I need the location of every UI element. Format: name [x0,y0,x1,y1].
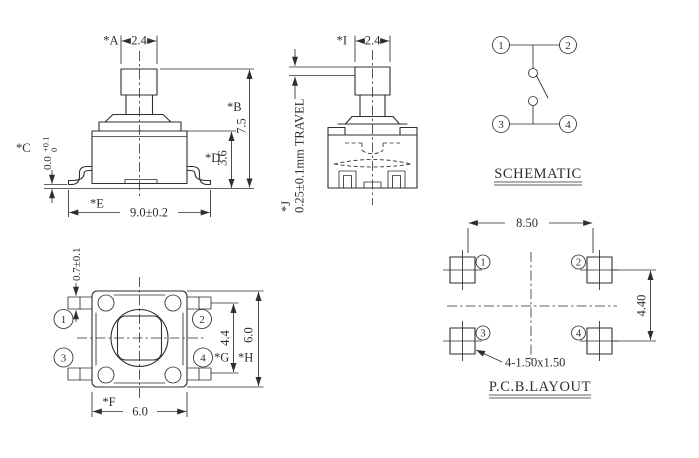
dim-a-value: 2.4 [131,34,147,48]
side-body-outline [328,50,417,205]
front-dim-a: *A 2.4 [103,34,157,65]
schematic-terminal-2: 2 [560,37,577,54]
schematic-title-underline [494,182,582,185]
dim-f-label: *F [102,395,115,409]
top-body-outline [68,277,211,401]
drawing-sheet: *A 2.4 *B 7.5 *D 3.6 *C [0,0,699,458]
pcb-pitch-x-value: 8.50 [516,216,538,230]
side-left-foot [339,171,356,188]
front-cover-flange [99,115,181,132]
pcb-terminal-2-number: 2 [576,257,581,268]
dim-g-value: 4.4 [218,329,232,345]
dim-j-value: 0.25±0.1mm TRAVEL [293,99,307,213]
top-rivet-tl [98,295,114,311]
top-rivet-tr [165,295,181,311]
schematic-terminal-1-number: 1 [498,40,504,52]
top-dim-g: *G 4.4 [211,303,239,373]
front-button-cap [121,69,157,95]
top-terminal-2: 2 [193,310,212,329]
dim-d-value: 3.6 [216,150,230,166]
top-dim-lead-width: 0.7±0.1 [71,247,83,322]
dim-b-value: 7.5 [235,118,249,134]
pcb-terminal-1-number: 1 [480,257,485,268]
pcb-terminal-1: 1 [476,255,490,269]
pcb-pad-note: 4-1.50x1.50 [505,356,565,370]
schematic-terminal-4-number: 4 [565,119,571,131]
pcb-layout-title: P.C.B.LAYOUT [489,379,591,395]
dim-g-label: *G [214,351,229,365]
schematic-terminal-3-number: 3 [498,119,504,131]
front-dim-d: *D 3.6 [187,131,236,188]
dim-c-lower-tolerance: 0 [49,148,59,152]
dim-j-label: *J [279,201,293,212]
schematic-terminal-2-number: 2 [565,40,571,52]
top-terminal-3-number: 3 [61,353,67,365]
front-dim-c: *C 0.0 +0.1 0 [16,137,67,203]
pcb-terminal-2: 2 [572,255,586,269]
schematic-contact-top [529,69,538,78]
pcb-pads [443,250,619,363]
schematic-switch-arm [537,76,549,99]
top-rivet-bl [98,367,114,383]
dim-c-tolerance: 0.0 +0.1 0 [41,137,60,170]
pcb-layout-title-underline [489,395,591,398]
pcb-dim-pitch-x: 8.50 [468,216,593,253]
front-body-outline [44,51,222,199]
pcb-terminal-4: 4 [572,326,586,340]
dim-c-value: 0.0 [42,156,54,170]
front-dim-b: *B 7.5 [160,69,254,189]
schematic-view: 1 2 3 4 SCHEMATIC [493,37,583,186]
top-terminal-4-number: 4 [200,353,206,365]
side-view: *I 2.4 *J 0.25±0.1mm TRAVEL [279,34,417,214]
top-terminal-1: 1 [54,310,73,329]
top-rivet-br [165,367,181,383]
dim-a-label: *A [103,34,118,48]
top-terminal-1-number: 1 [61,314,67,326]
pcb-pad-note-leader: 4-1.50x1.50 [476,350,565,370]
pcb-center-lines [447,252,617,363]
schematic-switch-symbol [510,45,560,124]
dim-f-value: 6.0 [132,405,148,419]
pcb-terminal-4-number: 4 [576,328,582,339]
schematic-title: SCHEMATIC [494,166,582,182]
front-right-lead [187,167,211,185]
schematic-terminal-4: 4 [560,116,577,133]
front-view: *A 2.4 *B 7.5 *D 3.6 *C [16,34,254,220]
pcb-layout-view: 1 2 3 4 8.50 4.40 [443,216,656,398]
dim-b-label: *B [227,100,242,114]
dim-i-value: 2.4 [365,34,381,48]
schematic-terminal-3: 3 [493,116,510,133]
schematic-contact-bottom [529,97,538,106]
top-lead-width-value: 0.7±0.1 [71,247,83,281]
pcb-pitch-y-value: 4.40 [635,295,649,317]
top-terminal-3: 3 [54,348,73,367]
top-terminal-4: 4 [194,348,213,367]
dim-e-label: *E [90,197,104,211]
pcb-terminal-3: 3 [476,326,490,340]
dim-h-value: 6.0 [242,327,256,343]
tact-switch-technical-drawing: *A 2.4 *B 7.5 *D 3.6 *C [0,0,699,458]
side-right-foot [388,171,405,188]
dim-c-label: *C [16,141,31,155]
dim-h-label: *H [238,351,253,365]
dim-i-label: *I [337,34,347,48]
pcb-terminal-3-number: 3 [480,328,485,339]
front-left-lead [69,167,93,185]
top-terminal-2-number: 2 [199,314,205,326]
schematic-terminal-1: 1 [493,37,510,54]
front-bottom-notch [125,180,157,184]
side-dim-i: *I 2.4 [337,34,390,63]
top-view: 1 2 3 4 0.7±0.1 *G 4.4 [54,247,264,418]
dim-e-value: 9.0±0.2 [130,206,168,220]
pcb-dim-pitch-y: 4.40 [612,270,656,341]
